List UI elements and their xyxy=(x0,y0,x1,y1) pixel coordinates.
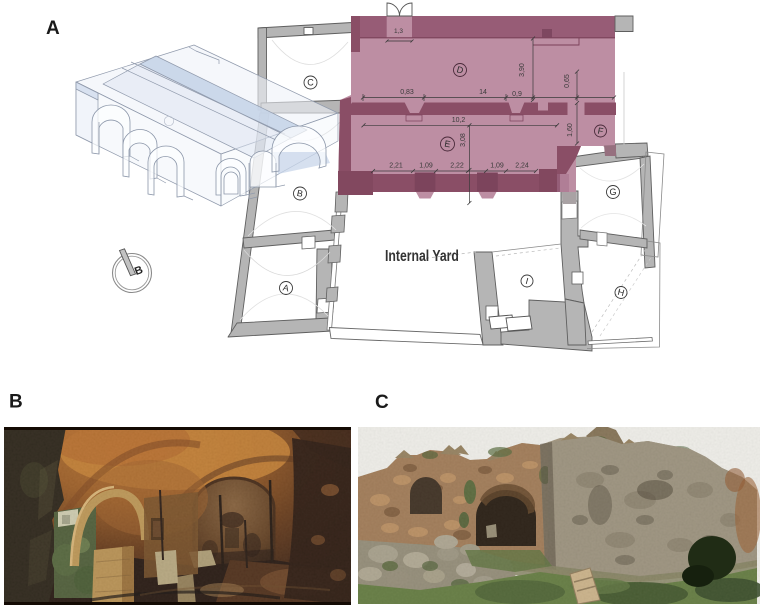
svg-text:2,22: 2,22 xyxy=(450,163,464,170)
svg-text:B: B xyxy=(9,392,23,413)
svg-text:A: A xyxy=(282,282,290,293)
svg-text:1,60: 1,60 xyxy=(567,123,574,137)
svg-text:0,83: 0,83 xyxy=(400,89,414,96)
svg-text:0,65: 0,65 xyxy=(564,74,571,88)
svg-text:B: B xyxy=(133,264,145,278)
svg-text:1,09: 1,09 xyxy=(419,163,433,170)
svg-text:1,09: 1,09 xyxy=(490,163,504,170)
svg-text:10,2: 10,2 xyxy=(452,117,466,124)
svg-text:G: G xyxy=(609,187,616,197)
svg-text:C: C xyxy=(307,78,314,88)
svg-text:A: A xyxy=(46,18,60,39)
svg-text:2,24: 2,24 xyxy=(515,163,529,170)
svg-text:1,3: 1,3 xyxy=(394,28,403,35)
svg-text:0,9: 0,9 xyxy=(512,91,522,98)
svg-text:I: I xyxy=(524,276,529,286)
svg-text:3,90: 3,90 xyxy=(519,63,526,77)
svg-text:14: 14 xyxy=(479,89,487,96)
svg-text:H: H xyxy=(617,287,626,298)
svg-text:C: C xyxy=(375,392,389,413)
svg-text:Internal Yard: Internal Yard xyxy=(385,247,459,265)
svg-text:3,08: 3,08 xyxy=(460,133,467,147)
svg-text:2,21: 2,21 xyxy=(389,163,403,170)
svg-text:B: B xyxy=(296,188,304,199)
